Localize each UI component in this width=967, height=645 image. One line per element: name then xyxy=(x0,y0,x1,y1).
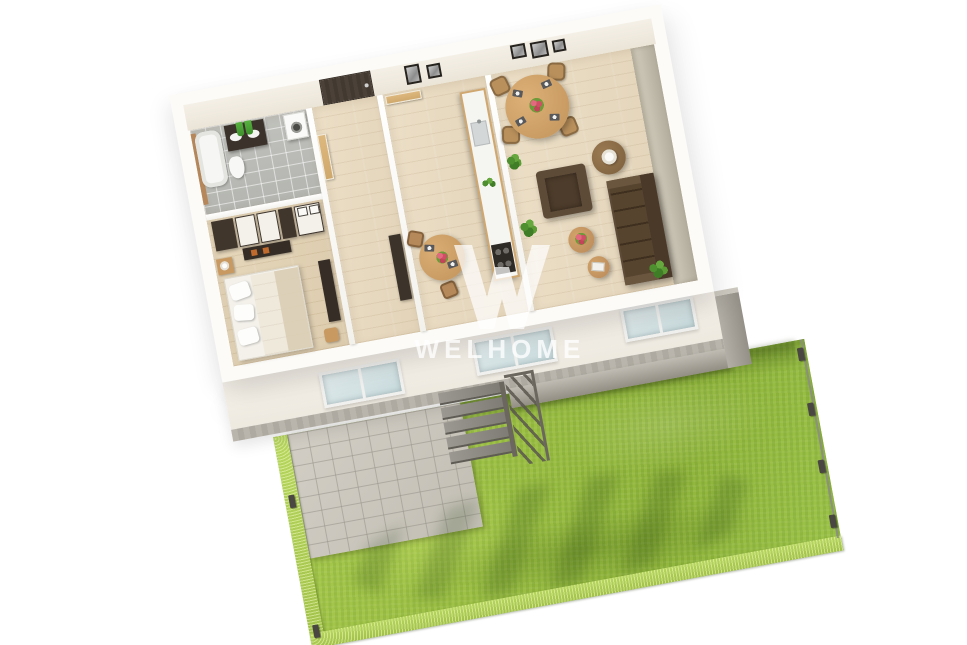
storage-box xyxy=(309,204,320,215)
kitchen-chair xyxy=(439,279,460,300)
double-bed xyxy=(223,265,313,361)
placemat xyxy=(512,89,523,98)
wardrobe-unit xyxy=(235,214,260,247)
fence-wire xyxy=(800,339,839,538)
wardrobe-unit xyxy=(256,210,281,243)
armchair-seat xyxy=(545,173,583,212)
pillow xyxy=(237,326,261,347)
green-towel xyxy=(235,122,244,137)
stool xyxy=(323,327,339,343)
potted-plant xyxy=(645,258,670,282)
potted-plant xyxy=(506,153,523,171)
wall-picture-frame xyxy=(426,63,442,79)
wardrobe-unit xyxy=(211,218,238,252)
vanity-cabinet xyxy=(224,119,268,152)
wall-picture-frame xyxy=(552,39,567,53)
toilet xyxy=(228,155,247,179)
green-towel xyxy=(244,120,253,135)
window-mullion xyxy=(358,368,366,398)
dresser-drawer xyxy=(251,249,258,256)
armchair xyxy=(535,163,593,219)
potted-plant xyxy=(518,217,539,240)
window-mullion xyxy=(655,305,663,333)
placemat xyxy=(550,114,560,121)
window-mullion xyxy=(510,336,518,366)
washing-machine xyxy=(283,111,309,141)
dresser-drawer xyxy=(263,247,270,254)
magazine xyxy=(591,262,605,272)
faucet xyxy=(477,119,482,124)
floorplan-scene xyxy=(139,0,896,645)
pillow xyxy=(234,304,255,321)
door-handle xyxy=(364,83,369,88)
placemat xyxy=(424,245,434,252)
wall-picture-frame xyxy=(404,64,422,85)
pillow xyxy=(228,280,252,302)
render-canvas: WELHOME xyxy=(0,0,967,645)
wall-picture-frame xyxy=(510,43,527,59)
washer-door xyxy=(290,121,303,134)
storage-box xyxy=(297,206,308,217)
wall-picture-frame xyxy=(530,40,550,59)
fence-post xyxy=(829,514,837,528)
